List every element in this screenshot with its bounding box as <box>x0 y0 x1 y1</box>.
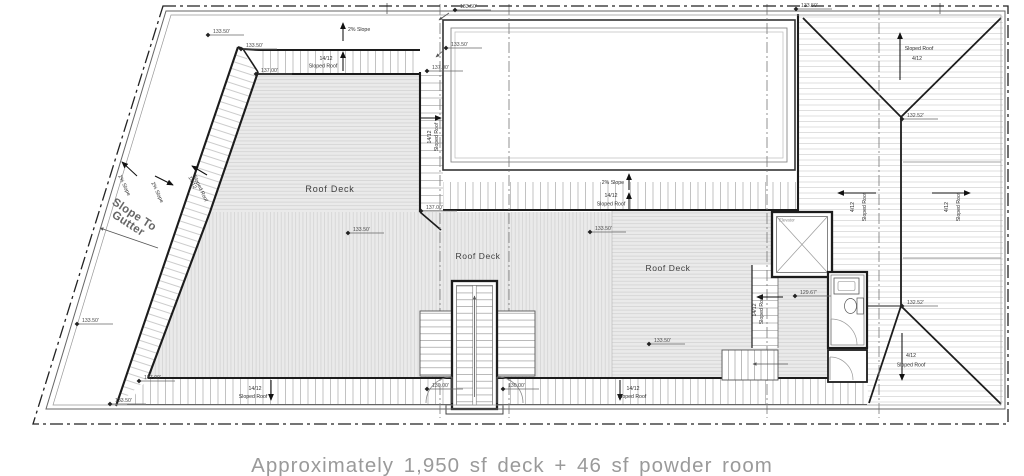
small-stair <box>722 350 778 380</box>
roof-deck-label-2: Roof Deck <box>455 251 500 261</box>
svg-text:132.52': 132.52' <box>907 113 924 119</box>
powder-room <box>828 272 867 382</box>
slope-note: Sloped Roof <box>759 295 765 324</box>
slope-note: 2% Slope <box>116 174 131 197</box>
slope-note: 4/12 <box>906 353 916 359</box>
slope-note: Sloped Roof <box>309 64 338 70</box>
elevator-shaft: Elevator <box>772 212 832 277</box>
svg-text:133.50': 133.50' <box>246 43 263 49</box>
svg-text:137.00': 137.00' <box>426 205 443 211</box>
slope-note: 14/12 <box>605 193 618 199</box>
slope-note: 4/12 <box>912 56 922 62</box>
slope-arrow <box>155 176 173 185</box>
svg-text:130.00': 130.00' <box>432 383 449 389</box>
elevation-marker: 133.50' <box>794 3 832 11</box>
slope-note: 2% Slope <box>149 181 164 204</box>
slope-note: Sloped Roof <box>905 46 934 52</box>
pool-platform <box>443 20 795 170</box>
svg-text:133.50': 133.50' <box>82 318 99 324</box>
elevator-label: Elevator <box>779 218 795 223</box>
slope-note: 4/12 <box>850 202 856 212</box>
slope-note: 14/12 <box>320 56 333 62</box>
svg-text:133.50': 133.50' <box>595 226 612 232</box>
closet <box>828 350 867 382</box>
slope-note: 14/12 <box>752 303 758 316</box>
slope-note: Sloped Roof <box>897 363 926 369</box>
slope-note: 14/12 <box>249 386 262 392</box>
elevation-marker: 133.50' <box>75 318 113 326</box>
svg-text:130.00': 130.00' <box>508 383 525 389</box>
slope-note: Sloped Roof <box>618 394 647 400</box>
slope-note: Sloped Roof <box>597 202 626 208</box>
slope-note: 4/12 <box>944 202 950 212</box>
slope-note: 2% Slope <box>602 180 624 186</box>
svg-text:133.50': 133.50' <box>115 398 132 404</box>
svg-text:137.00': 137.00' <box>432 65 449 71</box>
slope-note: 14/12 <box>627 386 640 392</box>
svg-text:137.00': 137.00' <box>261 68 278 74</box>
slope-note: Sloped Roof <box>862 192 868 221</box>
slope-note: 14/12 <box>427 130 433 143</box>
svg-text:132.52': 132.52' <box>907 300 924 306</box>
caption: Approximately 1,950 sf deck + 46 sf powd… <box>0 454 1024 476</box>
svg-text:133.50': 133.50' <box>451 42 468 48</box>
slope-note: 2% Slope <box>348 27 370 33</box>
slope-note: Sloped Roof <box>434 122 440 151</box>
slope-arrow <box>439 13 449 20</box>
roof-plan: Elevator Roof Deck Roof Deck Roof Deck S… <box>0 0 1024 441</box>
roof-deck-label-3: Roof Deck <box>645 263 690 273</box>
roof-plan-drawing: Elevator Roof Deck Roof Deck Roof Deck S… <box>0 0 1024 441</box>
slope-note: Sloped Roof <box>956 192 962 221</box>
svg-text:133.50': 133.50' <box>213 29 230 35</box>
svg-text:133.50': 133.50' <box>801 3 818 9</box>
toilet-bowl <box>845 299 857 314</box>
svg-text:137.00': 137.00' <box>144 375 161 381</box>
toilet-tank <box>857 298 864 314</box>
elevation-marker: 133.50' <box>206 29 244 37</box>
svg-text:133.50': 133.50' <box>654 338 671 344</box>
svg-text:129.67': 129.67' <box>800 290 817 296</box>
roof-deck-label-1: Roof Deck <box>305 184 354 194</box>
svg-text:133.50': 133.50' <box>460 4 477 10</box>
slope-note: Sloped Roof <box>239 394 268 400</box>
svg-text:133.50': 133.50' <box>353 227 370 233</box>
